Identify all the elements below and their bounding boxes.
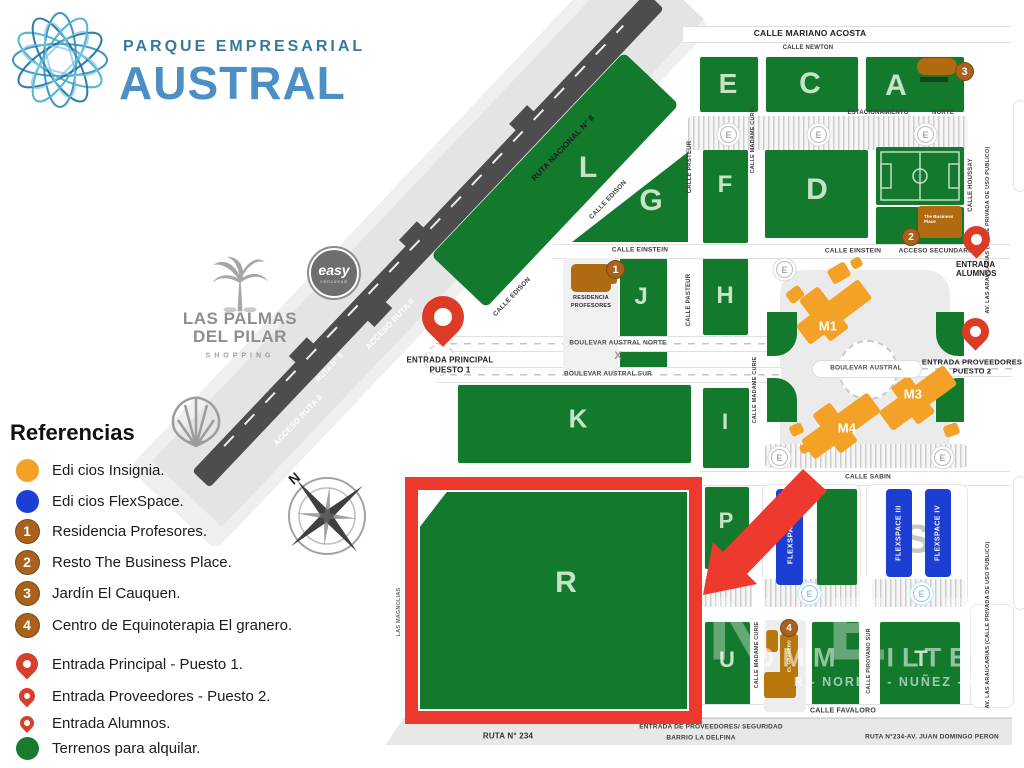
block-letter: K	[569, 404, 588, 435]
block-letter: D	[806, 173, 828, 207]
legend-item-entrada-principal: Entrada Principal - Puesto 1.	[10, 651, 243, 677]
pin-label-principal-line2: PUESTO 1	[429, 366, 470, 375]
parking-e-circle: E	[720, 126, 737, 143]
legend-item-label: Edi cios FlexSpace.	[52, 493, 184, 510]
residencia-label-line2: PROFESORES	[571, 303, 611, 309]
residencia-building	[571, 264, 611, 292]
street-label-pasteur: CALLE PASTEUR	[686, 274, 692, 327]
badge-number: 2	[908, 232, 914, 243]
street-label-pasteur: CALLE PASTEUR	[687, 141, 693, 194]
street-label-boulevar: BOULEVAR AUSTRAL	[830, 365, 902, 372]
pin-label-proveedores-line1: ENTRADA PROVEEDORES	[922, 358, 1022, 367]
logo-title-line2: AUSTRAL	[119, 56, 346, 110]
pin-label-principal-line1: ENTRADA PRINCIPAL	[407, 356, 494, 365]
parking-letter: E	[725, 130, 731, 140]
watermark-line2: R - NORE A - NUÑEZ - D	[794, 675, 980, 689]
legend-item-terrenos: Terrenos para alquilar.	[10, 735, 200, 761]
flexspace4-label: FLEXSPACE IV	[935, 505, 942, 561]
shopping-subtitle: SHOPPING	[206, 353, 275, 360]
street-label-pirovano: CALLE PIROVANO SUR	[866, 628, 872, 694]
street-label-ruta-234-peron: RUTA N°234-AV. JUAN DOMINGO PERON	[865, 734, 999, 741]
m4-label: M4	[838, 421, 856, 436]
pin-icon	[11, 648, 42, 679]
legend-item-label: Entrada Alumnos.	[52, 715, 170, 732]
jardin-el-cauquen-caption	[920, 77, 948, 82]
parking-label-estacionamiento: ESTACIONAMIENTO	[847, 110, 908, 116]
parking-e-circle: E	[917, 126, 934, 143]
pin-label-alumnos: ENTRADA ALUMNOS	[956, 260, 1004, 278]
legend-item-label: Centro de Equinoterapia El granero.	[52, 617, 292, 634]
shopping-name-line2: DEL PILAR	[193, 327, 287, 347]
block-letter: A	[885, 69, 907, 103]
badge-4-icon: 4	[15, 613, 40, 638]
street-label-houssay: CALLE HOUSSAY	[968, 158, 974, 211]
parking-e-circle: E	[776, 261, 793, 278]
badge-1-icon: 1	[15, 519, 40, 544]
map-screenshot: RUTA NACIONAL N° 8 ACCESO RUTA 8 ACCESO …	[0, 0, 1024, 768]
street-label-ruta-234: RUTA N° 234	[483, 732, 533, 741]
parking-letter: E	[939, 453, 945, 463]
highlight-arrow-icon	[685, 455, 830, 615]
right-edge-card	[1013, 100, 1024, 192]
legend-item-label: Resto The Business Place.	[52, 554, 232, 571]
m1-label: M1	[819, 319, 837, 334]
map-badge-1: 1	[606, 260, 625, 279]
block-letter: E	[719, 68, 738, 100]
watermark-line1: OMM BILTER	[754, 643, 1003, 674]
soccer-field	[876, 147, 964, 210]
block-letter: F	[718, 171, 733, 199]
street-label-einstein: CALLE EINSTEIN	[825, 248, 881, 255]
logo-title-line1: PARQUE EMPRESARIAL	[123, 38, 365, 56]
pin-icon	[17, 713, 37, 733]
easy-logo-subtext: cencosud	[320, 279, 347, 284]
shell-station-icon	[165, 392, 227, 455]
flexspace-circle-icon	[16, 490, 39, 513]
legend-item-entrada-proveedores: Entrada Proveedores - Puesto 2.	[10, 683, 270, 709]
easy-logo-text: easy	[318, 263, 349, 277]
street-label-sabin: CALLE SABIN	[845, 474, 891, 481]
block-letter: I	[722, 409, 728, 435]
parking-letter: E	[781, 265, 787, 275]
street-label-einstein: CALLE EINSTEIN	[612, 247, 668, 254]
legend-item-label: Jardín El Cauquen.	[52, 585, 180, 602]
pin-icon	[16, 685, 39, 708]
street-label-acceso-secundario: ACCESO SECUNDARIO	[899, 248, 976, 255]
street-label-x: X	[614, 350, 622, 362]
block-r-highlight-border	[405, 477, 702, 724]
pin-label-proveedores-line2: PUESTO 2	[953, 367, 992, 376]
street-label-araucarias: AV. LAS ARAUCARIAS (CALLE PRIVADA DE USO…	[985, 542, 991, 709]
street-label-madame-curie: CALLE MADAME CURIE	[752, 357, 758, 424]
parking-e-circle: E	[934, 449, 951, 466]
badge-2-icon: 2	[15, 550, 40, 575]
badge-3-icon: 3	[15, 581, 40, 606]
block-letter: J	[634, 283, 647, 311]
shopping-name-line1: LAS PALMAS	[183, 309, 297, 329]
easy-logo: easy cencosud	[309, 248, 359, 298]
residencia-label-line1: RESIDENCIA	[573, 295, 609, 301]
austral-logo	[4, 4, 116, 121]
compass-rose-icon: N	[272, 461, 382, 576]
map-badge-3: 3	[955, 62, 974, 81]
street-label-madame-curie: CALLE MADAME CURIE	[750, 107, 756, 174]
street-label-barrio: BARRIO LA DELFINA	[666, 735, 735, 742]
terrenos-circle-icon	[16, 737, 39, 760]
block-j	[620, 258, 667, 376]
parking-letter: E	[922, 130, 928, 140]
street-label-mariano-acosta: CALLE MARIANO ACOSTA	[754, 28, 867, 38]
street-label-boulevar-norte: BOULEVAR AUSTRAL NORTE	[569, 340, 666, 347]
insignia-circle-icon	[16, 459, 39, 482]
street-label-madame-curie: CALLE MADAME CURIE	[754, 622, 760, 689]
legend-item-label: Entrada Principal - Puesto 1.	[52, 656, 243, 673]
business-place-label: The Business Place	[924, 214, 958, 225]
legend-item-jardin: 3 Jardín El Cauquen.	[10, 580, 180, 606]
map-badge-2: 2	[902, 228, 920, 246]
legend-item-entrada-alumnos: Entrada Alumnos.	[10, 710, 170, 736]
legend-item-business-place: 2 Resto The Business Place.	[10, 549, 232, 575]
legend-item-equinoterapia: 4 Centro de Equinoterapia El granero.	[10, 612, 292, 638]
badge-number: 1	[612, 264, 618, 276]
legend-item-flexspace: Edi cios FlexSpace.	[10, 488, 184, 514]
legend-item-label: Residencia Profesores.	[52, 523, 207, 540]
legend-item-label: Terrenos para alquilar.	[52, 740, 200, 757]
street-label-boulevar-sur: BOULEVAR AUSTRAL SUR	[564, 371, 652, 378]
parking-label-norte: NORTE	[932, 110, 954, 116]
street-label-newton: CALLE NEWTON	[783, 45, 834, 51]
block-letter: G	[639, 184, 662, 218]
badge-number: 3	[961, 66, 967, 78]
parking-letter: E	[815, 130, 821, 140]
legend-title: Referencias	[10, 420, 135, 446]
austral-logo-icon	[4, 4, 116, 116]
m3-label: M3	[904, 387, 922, 402]
block-letter: H	[716, 282, 733, 310]
flexspace3-label: FLEXSPACE III	[896, 505, 903, 561]
legend-item-insignia: Edi cios Insignia.	[10, 457, 165, 483]
legend-item-residencia: 1 Residencia Profesores.	[10, 518, 207, 544]
street-label-magnolias: LAS MAGNOLIAS	[396, 588, 402, 637]
parking-e-circle: E	[810, 126, 827, 143]
legend-item-label: Entrada Proveedores - Puesto 2.	[52, 688, 270, 705]
street-label-entrada-seguridad: ENTRADA DE PROVEEDORES/ SEGURIDAD	[639, 724, 783, 731]
jardin-el-cauquen-building	[917, 58, 957, 75]
block-letter: C	[799, 67, 821, 101]
street-label-favaloro: CALLE FAVALORO	[810, 708, 876, 715]
legend-item-label: Edi cios Insignia.	[52, 462, 165, 479]
block-letter: L	[579, 151, 597, 185]
